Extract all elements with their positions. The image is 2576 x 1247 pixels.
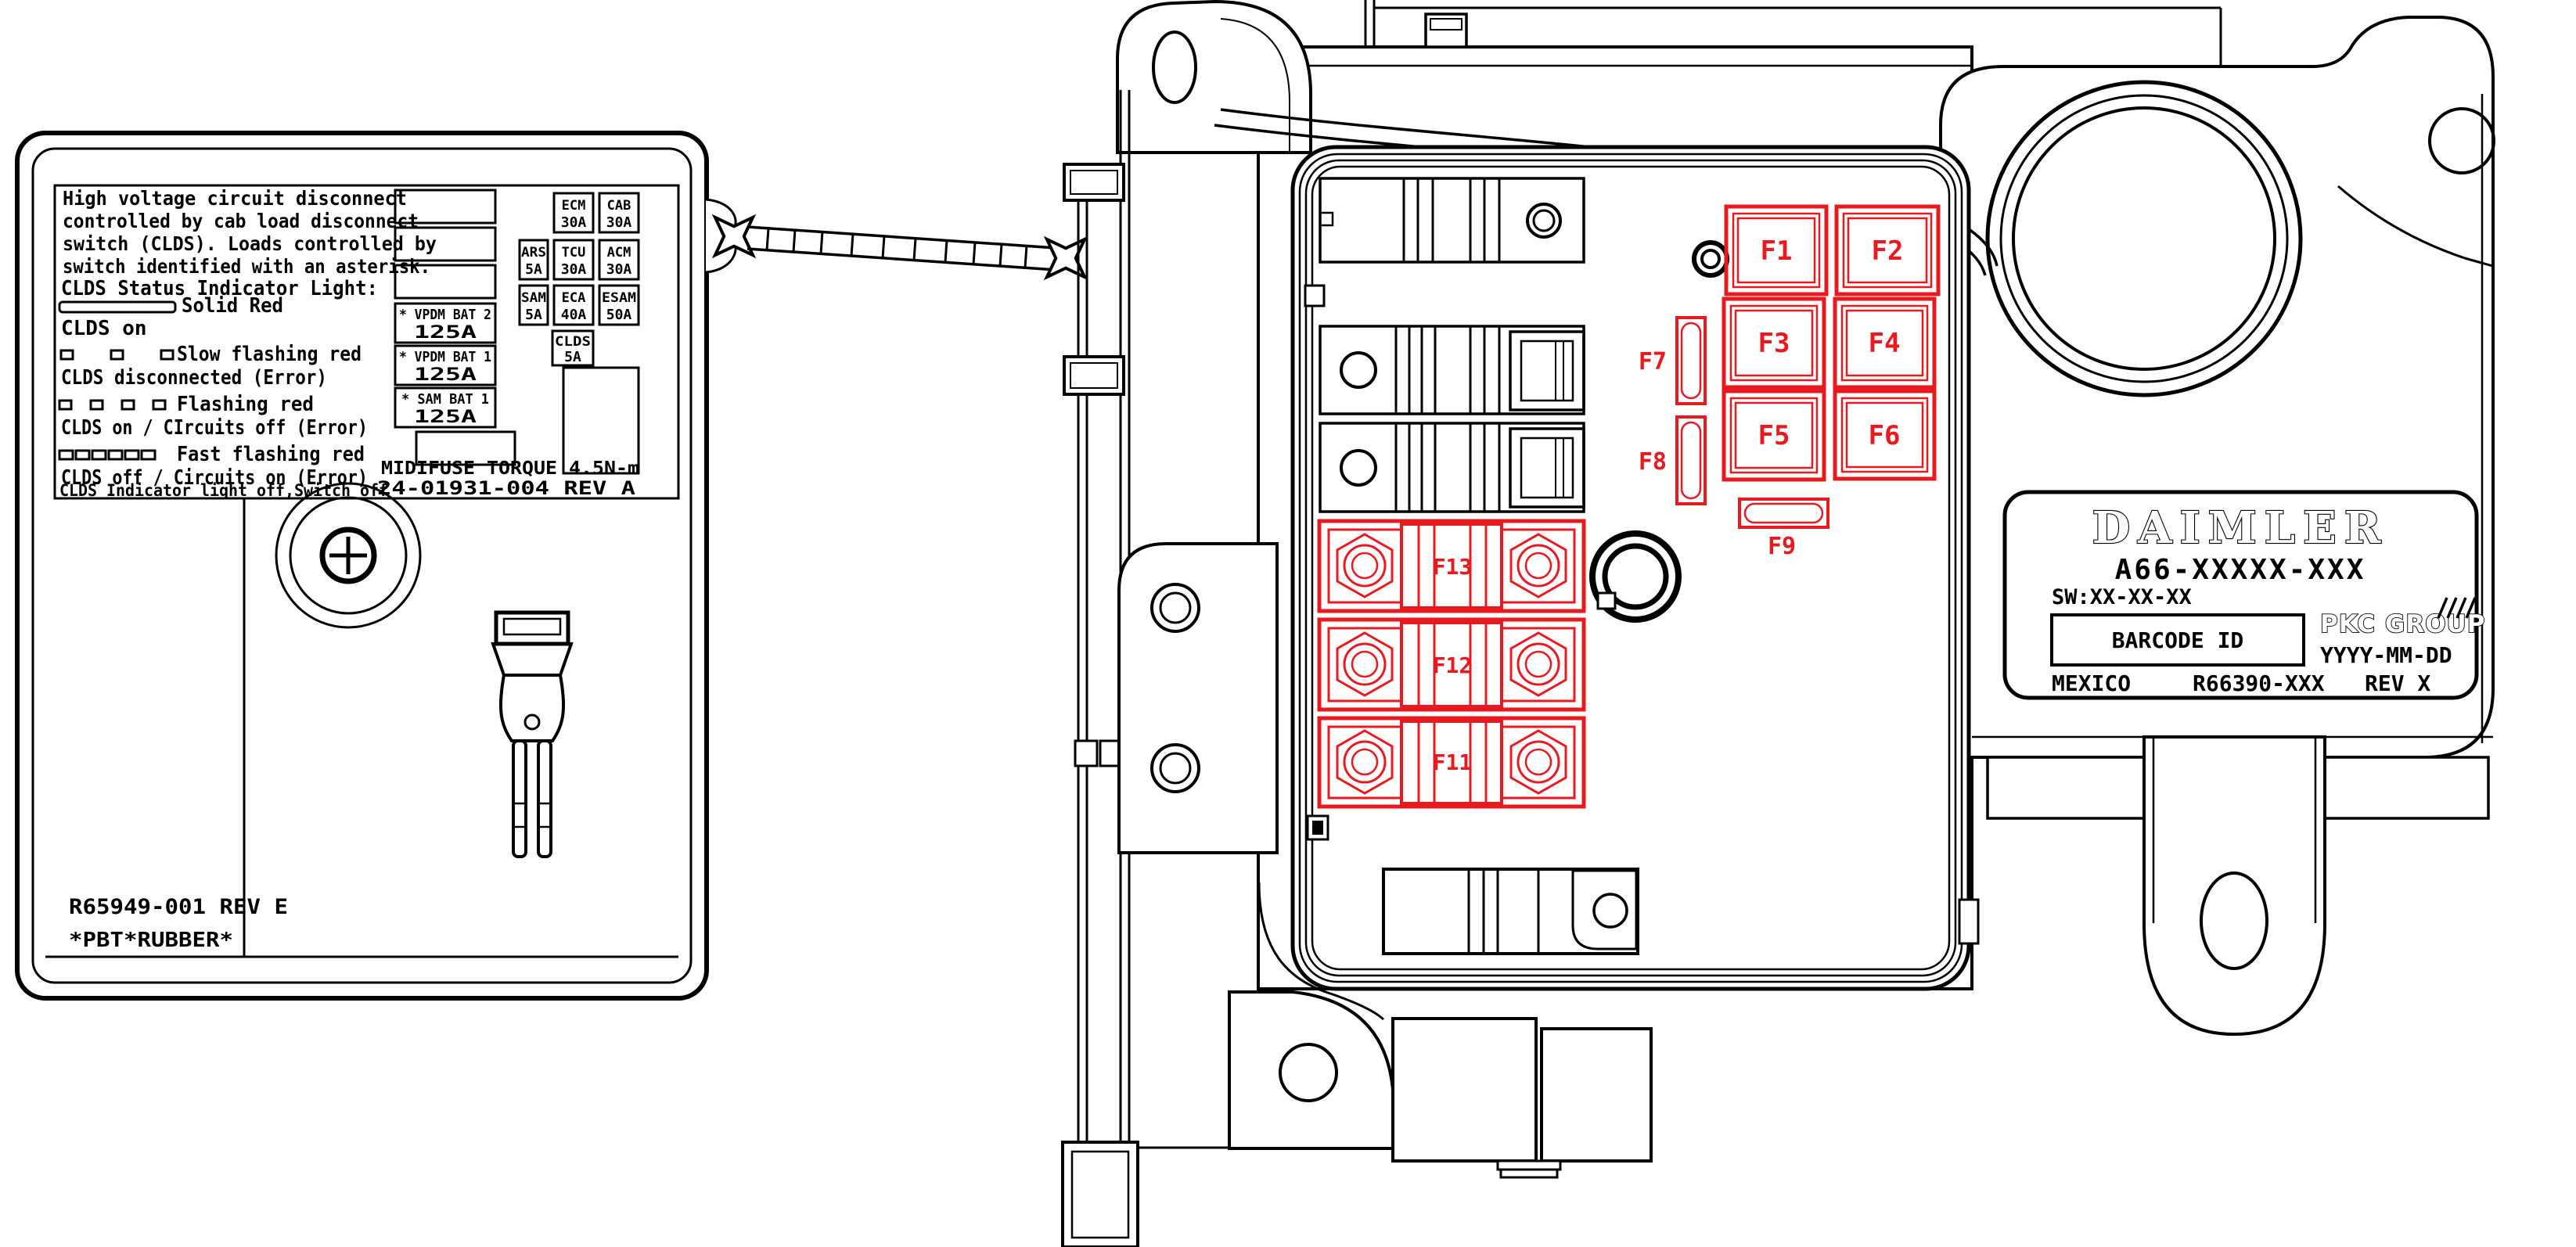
mini-fuse-rating: 30A <box>561 261 587 278</box>
fuse-F5-label: F5 <box>1758 420 1790 451</box>
fuse-F2-label: F2 <box>1872 235 1904 267</box>
mini-fuse-rating: 5A <box>564 349 581 365</box>
product-label: DAIMLER A66-XXXXX-XXX SW:XX-XX-XX BARCOD… <box>2005 492 2485 698</box>
mini-fuse-name: CAB <box>607 198 631 214</box>
mini-fuse-table: ECM 30A CAB 30A ARS 5A TCU 30A ACM 30A S… <box>520 193 639 365</box>
solid-bar-icon <box>59 302 175 312</box>
product-part-number: A66-XXXXX-XXX <box>2115 554 2366 586</box>
bottom-connector-block <box>1383 869 1638 954</box>
warning-label: High voltage circuit disconnect controll… <box>17 133 707 998</box>
state-solid-meaning: CLDS on <box>61 317 147 340</box>
breaker-block-1 <box>1320 178 1584 262</box>
torque-note: MIDIFUSE TORQUE 4.5N-m <box>381 458 639 479</box>
midi-fuse-name: * VPDM BAT 1 <box>399 349 491 365</box>
ref-number: R66390-XXX <box>2193 670 2325 696</box>
state-solid-label: Solid Red <box>182 294 283 318</box>
fuse-F9-label: F9 <box>1768 533 1796 560</box>
fuse-F13-label: F13 <box>1433 554 1473 580</box>
panel-clip <box>1305 286 1324 306</box>
fuse-box-service-diagram: High voltage circuit disconnect controll… <box>0 0 2576 1247</box>
label-tether <box>696 199 1103 296</box>
label-desc-line1: High voltage circuit disconnect <box>63 187 407 210</box>
torx-screw-icon <box>276 483 420 627</box>
state-fast-label: Fast flashing red <box>177 443 365 466</box>
flash-icon <box>59 401 165 409</box>
label-desc-line3: switch (CLDS). Loads controlled by <box>63 232 437 255</box>
mounting-foot <box>1542 1029 1651 1161</box>
tether-end-star <box>1028 221 1103 296</box>
label-material: *PBT*RUBBER* <box>69 929 233 952</box>
brand-wordmark: DAIMLER <box>2092 502 2389 554</box>
mini-fuse-rating: 5A <box>525 307 542 323</box>
mini-fuse-rating: 30A <box>606 214 632 231</box>
fuse-F8-label: F8 <box>1639 448 1667 476</box>
side-bolt-bracket <box>1119 544 1277 853</box>
mini-fuse-name: TCU <box>562 245 586 261</box>
mini-fuse-name: ACM <box>607 245 631 261</box>
bottom-left-mounting-plate <box>1229 992 1394 1148</box>
label-part-number: R65949-001 REV E <box>69 895 288 919</box>
state-flash-meaning: CLDS on / CIrcuits off (Error) <box>61 416 368 440</box>
midi-fuse-rating: 125A <box>414 408 477 427</box>
fuse-panel <box>1293 147 1969 989</box>
mini-fuse-name: ECM <box>562 198 586 214</box>
barcode-placeholder: BARCODE ID <box>2112 627 2244 653</box>
diagram-canvas: High voltage circuit disconnect controll… <box>0 0 2576 1247</box>
mini-fuse-rating: 50A <box>606 307 632 323</box>
revision: REV X <box>2365 670 2430 696</box>
mounting-foot <box>1393 1019 1536 1161</box>
fuse-F4-label: F4 <box>1869 328 1901 359</box>
mini-fuse-name: CLDS <box>555 334 591 350</box>
breaker-block-3 <box>1320 423 1584 512</box>
country-of-origin: MEXICO <box>2052 670 2131 696</box>
empty-note-box <box>563 368 639 473</box>
state-slow-meaning: CLDS disconnected (Error) <box>61 366 327 390</box>
mini-fuse-rating: 30A <box>606 261 632 278</box>
midi-fuse-rating: 125A <box>414 323 477 343</box>
top-left-mounting-ear <box>1117 2 1311 153</box>
mini-fuse-name: ESAM <box>602 290 636 306</box>
manufacturer-logo: PKC GROUP <box>2320 610 2485 638</box>
label-desc-line4: switch identified with an asterisk. <box>63 255 430 278</box>
fast-flash-icon <box>59 451 155 459</box>
bottom-mounting-tab <box>2144 737 2325 1034</box>
midi-fuse-name: * VPDM BAT 2 <box>399 307 491 323</box>
fuse-F6-label: F6 <box>1869 420 1901 451</box>
label-desc-line2: controlled by cab load disconnect <box>63 210 419 232</box>
tether-segments <box>767 228 1027 268</box>
fuse-puller-icon <box>493 613 571 857</box>
mini-fuse-rating: 30A <box>561 214 587 231</box>
panel-clip <box>1959 900 1978 943</box>
fuse-F1-label: F1 <box>1761 235 1793 267</box>
mini-fuse-rating: 5A <box>525 261 542 278</box>
mini-fuse-rating: 40A <box>561 307 587 323</box>
mini-fuse-name: SAM <box>521 290 546 306</box>
fuse-F7-label: F7 <box>1639 348 1667 376</box>
mini-fuse-name: ECA <box>562 290 586 306</box>
doc-number: 24-01931-004 REV A <box>377 477 636 499</box>
fuse-F12-label: F12 <box>1433 652 1473 678</box>
slow-flash-icon <box>61 350 173 359</box>
state-flash-label: Flashing red <box>177 393 314 416</box>
fuse-F11-label: F11 <box>1433 749 1473 775</box>
midi-fuse-rating: 125A <box>414 365 477 385</box>
date-format: YYYY-MM-DD <box>2320 642 2452 668</box>
fuse-F3-label: F3 <box>1758 328 1790 359</box>
breaker-block-2 <box>1320 326 1584 414</box>
software-version: SW:XX-XX-XX <box>2052 585 2192 609</box>
midi-fuse-name: * SAM BAT 1 <box>401 391 489 408</box>
mini-fuse-name: ARS <box>521 245 546 261</box>
state-slow-label: Slow flashing red <box>177 343 362 366</box>
grommet-ring <box>1988 82 2301 395</box>
